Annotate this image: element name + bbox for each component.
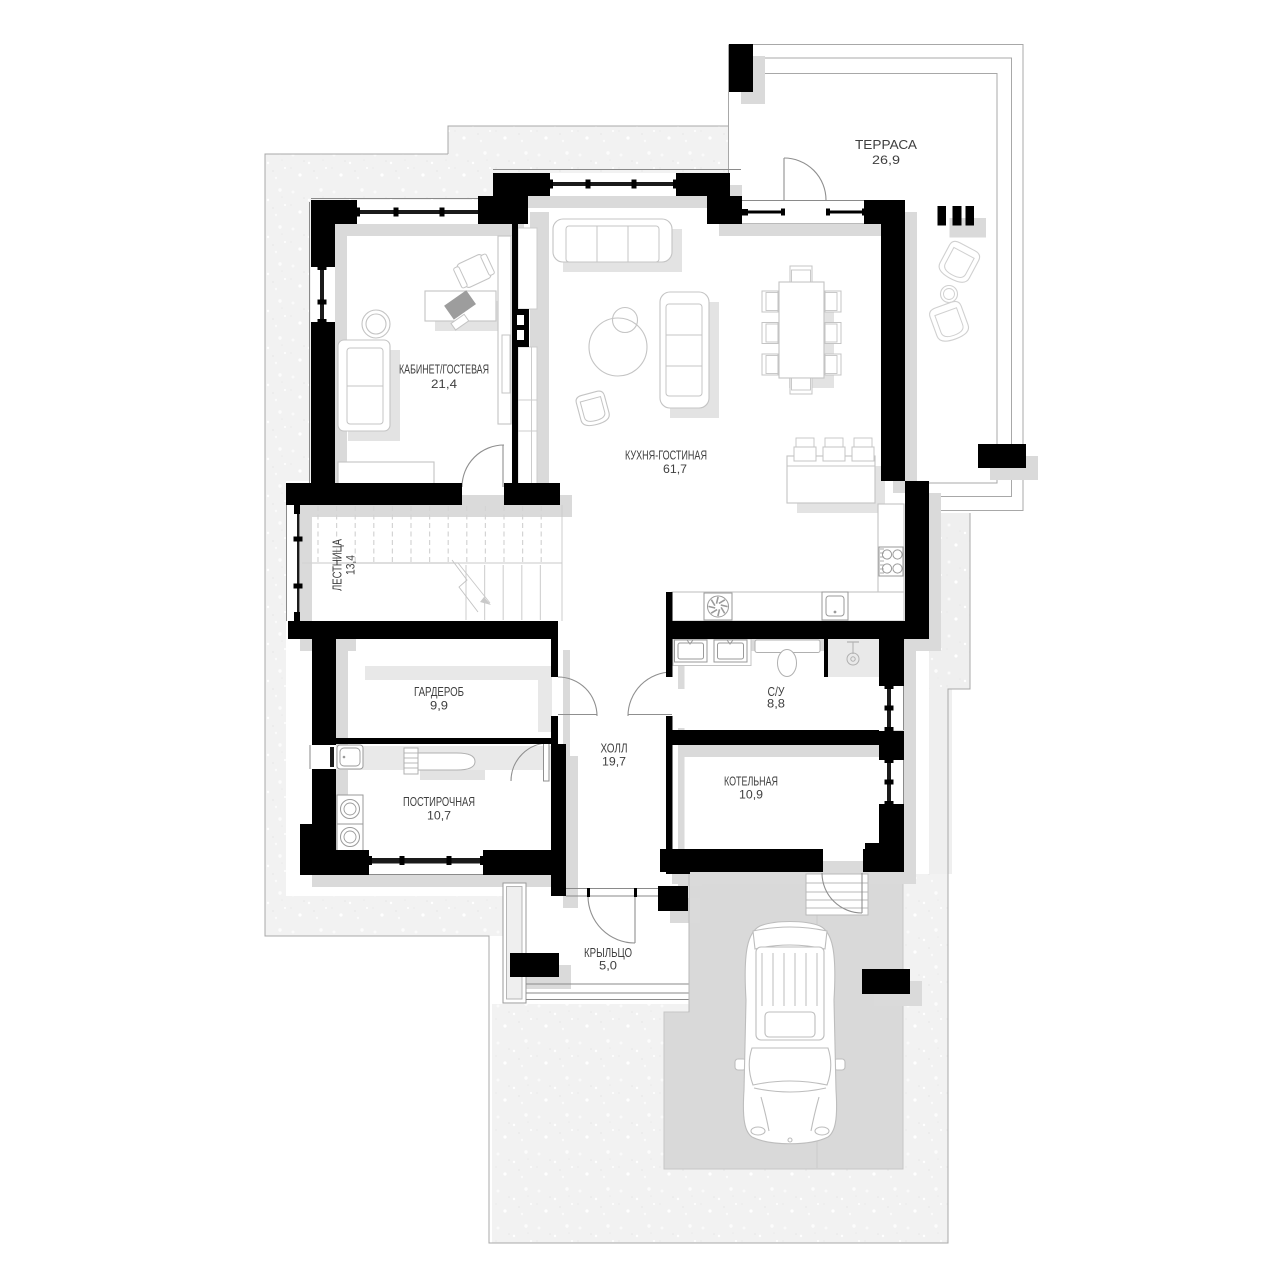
svg-text:ТЕРРАСА: ТЕРРАСА [855,138,918,152]
svg-text:61,7: 61,7 [663,462,687,476]
svg-text:КОТЕЛЬНАЯ: КОТЕЛЬНАЯ [724,775,778,789]
svg-text:КАБИНЕТ/ГОСТЕВАЯ: КАБИНЕТ/ГОСТЕВАЯ [399,363,489,377]
svg-text:ГАРДЕРОБ: ГАРДЕРОБ [414,685,464,699]
svg-text:10,7: 10,7 [427,809,451,823]
svg-text:ПОСТИРОЧНАЯ: ПОСТИРОЧНАЯ [403,795,475,809]
svg-text:КУХНЯ-ГОСТИНАЯ: КУХНЯ-ГОСТИНАЯ [625,449,707,463]
svg-text:13,4: 13,4 [344,555,358,575]
svg-text:21,4: 21,4 [431,377,457,391]
svg-text:9,9: 9,9 [430,699,448,713]
svg-text:10,9: 10,9 [739,788,763,802]
svg-text:5,0: 5,0 [599,959,617,973]
svg-text:19,7: 19,7 [602,755,626,769]
svg-text:ХОЛЛ: ХОЛЛ [601,742,628,756]
svg-text:26,9: 26,9 [872,153,900,167]
svg-text:8,8: 8,8 [767,697,785,711]
svg-text:ЛЕСТНИЦА: ЛЕСТНИЦА [331,539,345,591]
